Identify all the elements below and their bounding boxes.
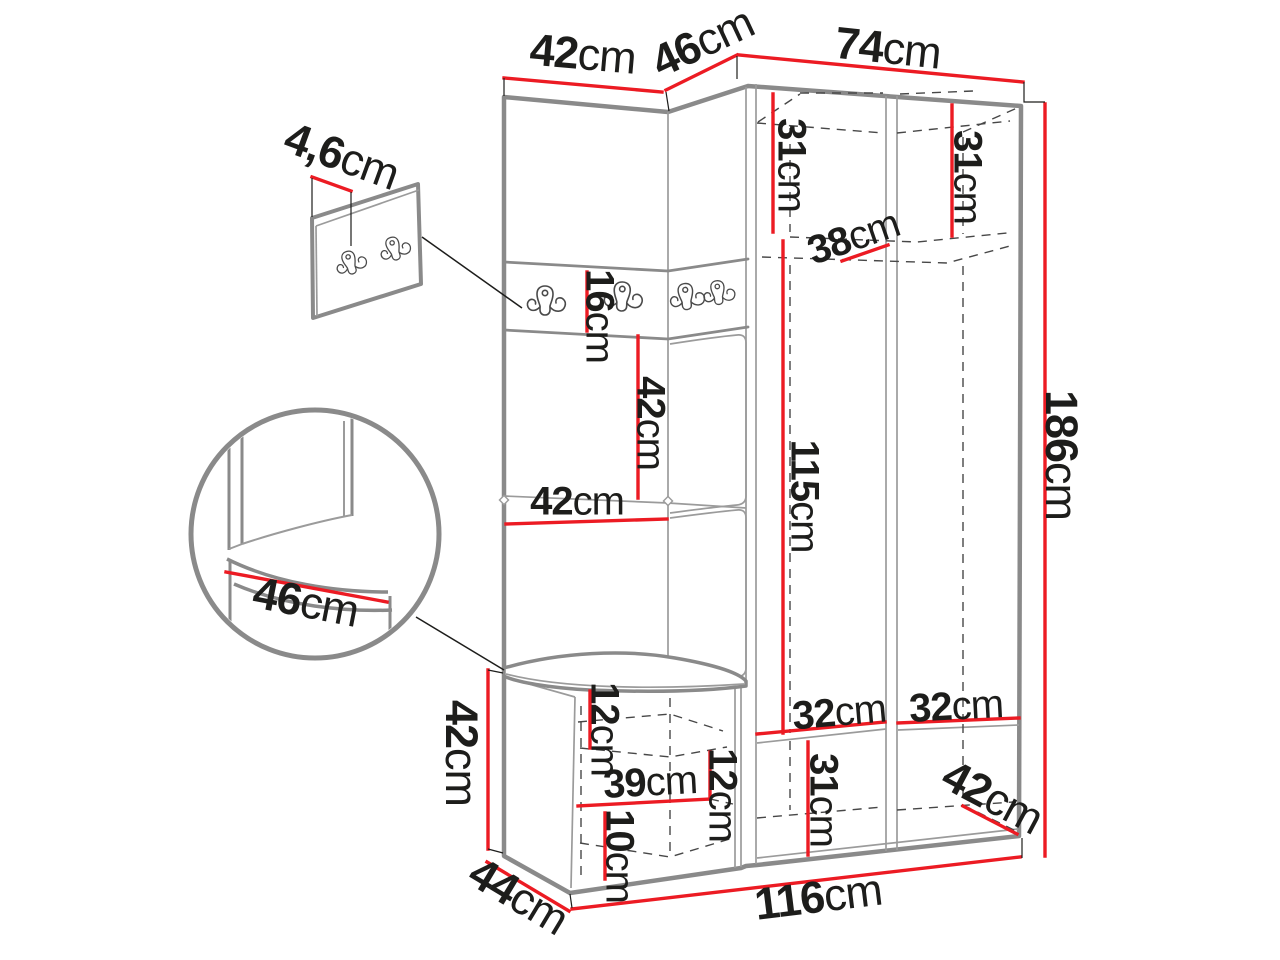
dim-label-lower-left-width: 32cm [790, 686, 887, 738]
dim-label-bench-height: 42cm [436, 700, 487, 806]
dim-label-hook-strip-height: 16cm [578, 269, 622, 363]
furniture-dimension-diagram: 42cm 46cm 74cm 4,6cm 31cm 31cm 38cm 16cm… [0, 0, 1280, 960]
dim-label-total-width: 116cm [752, 864, 885, 930]
dim-label-top-left-width: 42cm [528, 24, 638, 84]
diagram-svg: 42cm 46cm 74cm 4,6cm 31cm 31cm 38cm 16cm… [0, 0, 1280, 960]
dim-label-total-height: 186cm [1036, 390, 1087, 520]
dim-label-top-right-width: 74cm [833, 17, 944, 79]
dim-label-lower-compartment-height: 31cm [802, 753, 846, 847]
hook-panel-board [312, 184, 421, 318]
dim-label-top-corner-width: 46cm [643, 0, 761, 87]
hook-panel-detail [312, 184, 522, 318]
dim-label-bench-lower-height: 10cm [598, 809, 642, 903]
dim-label-shelf-width: 42cm [530, 479, 624, 523]
dim-label-hanging-height: 115cm [783, 440, 827, 553]
dim-label-bench-shelf-width: 39cm [602, 758, 698, 807]
dim-label-bench-side-inset: 12cm [701, 748, 745, 842]
dim-label-lower-right-width: 32cm [908, 682, 1004, 731]
dim-label-upper-right-height: 31cm [946, 130, 990, 224]
dim-label-upper-left-height: 31cm [770, 118, 814, 212]
callout-pointer-line [416, 617, 504, 670]
dim-line-top-left-width [504, 78, 662, 92]
dim-label-niche-height: 42cm [629, 376, 673, 470]
